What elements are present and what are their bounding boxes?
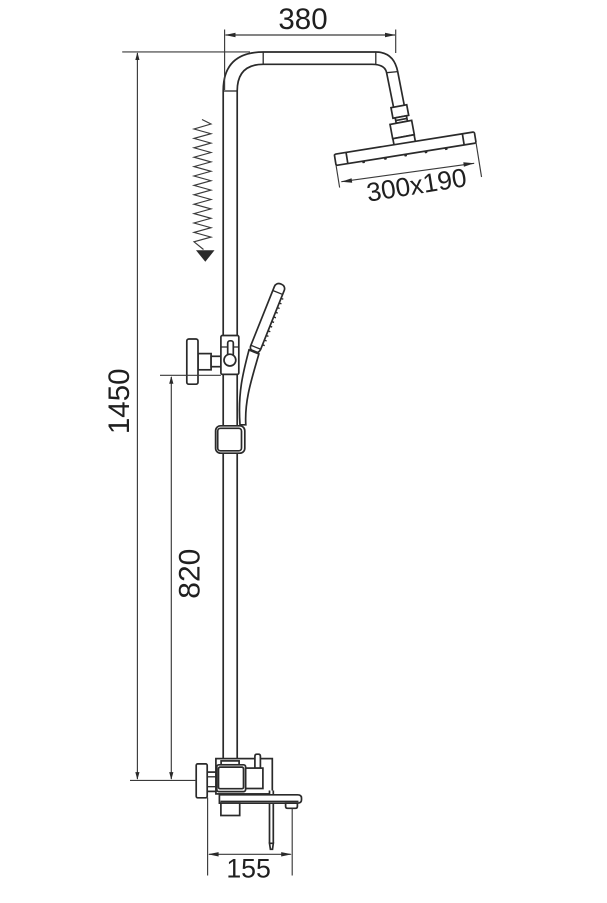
svg-text:380: 380 (278, 3, 327, 36)
svg-text:155: 155 (226, 854, 271, 884)
svg-text:820: 820 (174, 549, 207, 599)
svg-text:1450: 1450 (103, 368, 136, 434)
